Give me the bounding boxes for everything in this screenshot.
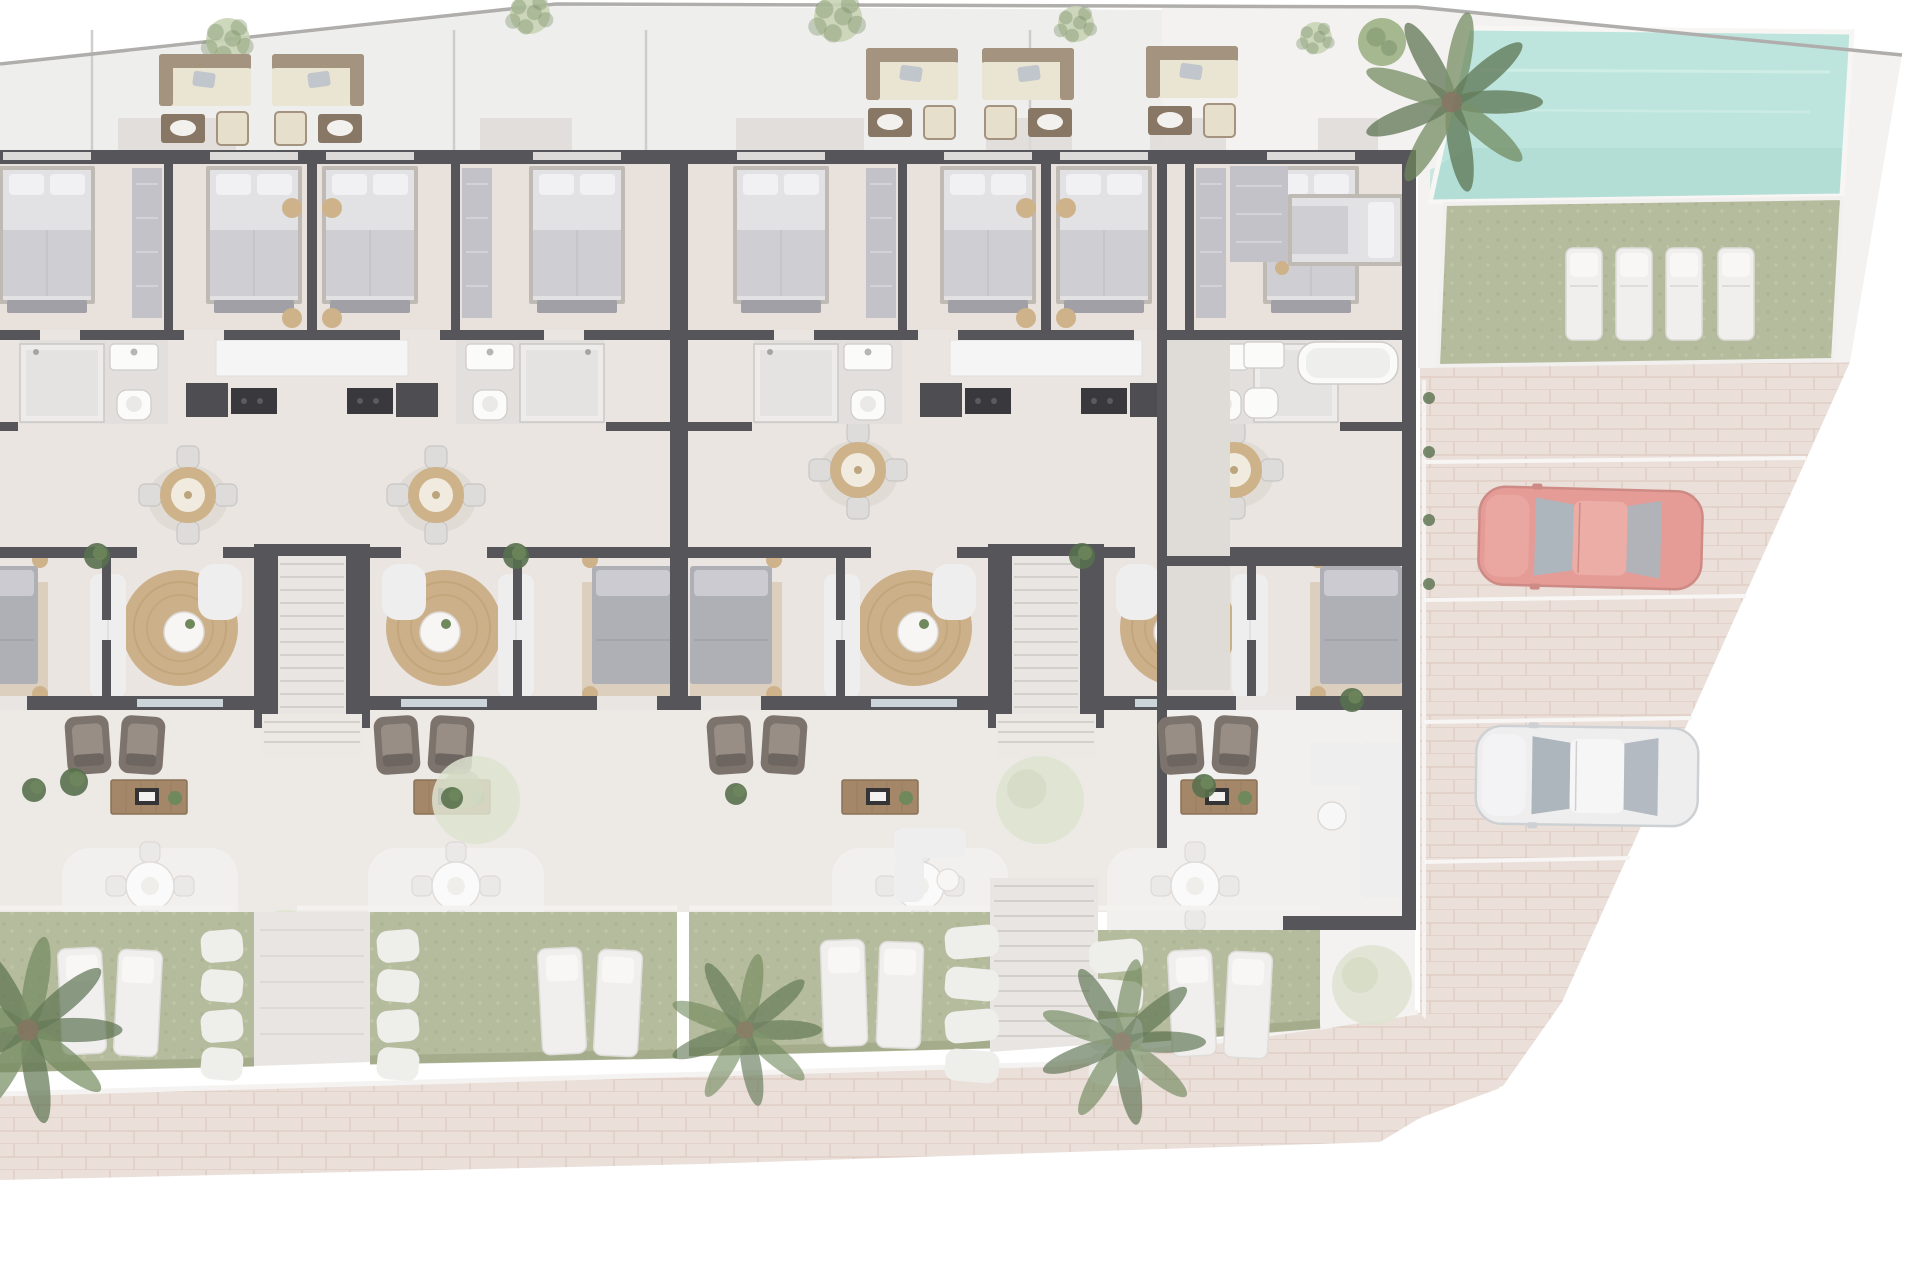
white-wash-overlay: [0, 0, 1920, 1280]
floor-plan: [0, 0, 1920, 1280]
floor-plan-canvas: [0, 0, 1920, 1280]
wash: [0, 0, 1920, 1280]
